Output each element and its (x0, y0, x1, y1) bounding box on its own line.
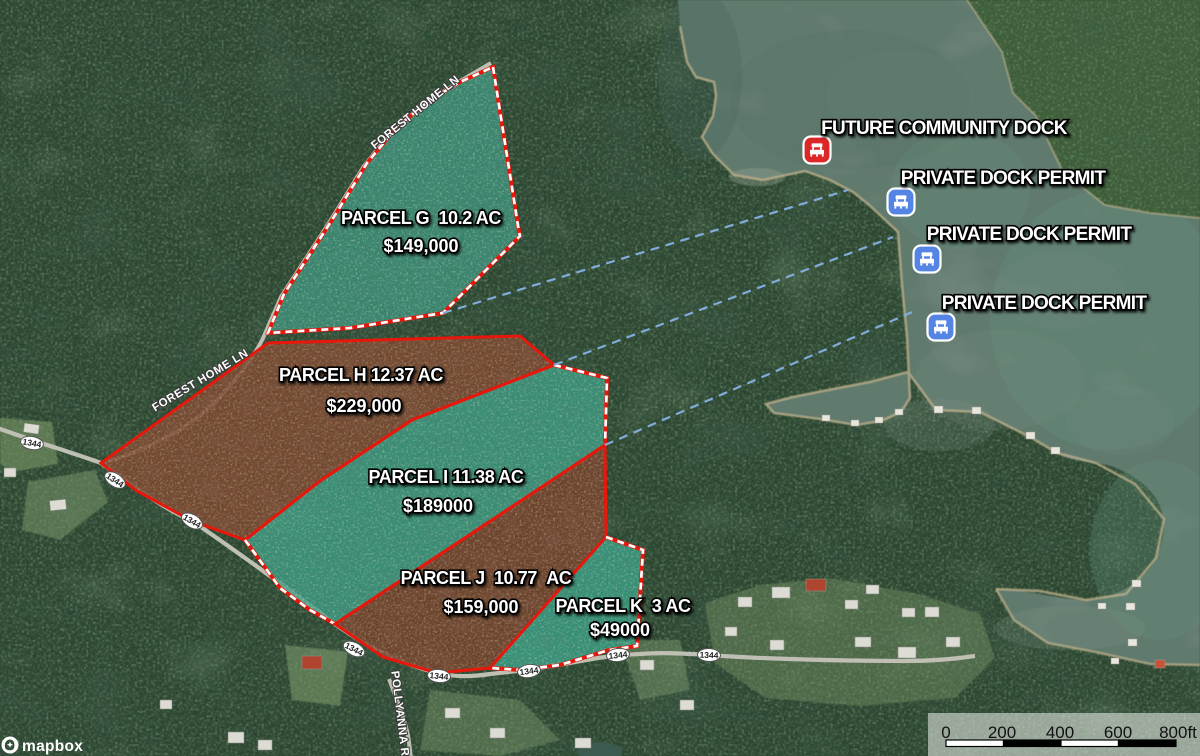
svg-text:800ft: 800ft (1159, 723, 1197, 742)
svg-text:PARCEL H 12.37 AC: PARCEL H 12.37 AC (279, 365, 443, 385)
svg-text:$159,000: $159,000 (443, 597, 518, 617)
svg-text:PARCEL K 3 AC: PARCEL K 3 AC (555, 596, 690, 616)
svg-text:PRIVATE DOCK PERMIT: PRIVATE DOCK PERMIT (901, 168, 1107, 189)
svg-text:200: 200 (988, 723, 1016, 742)
svg-text:1344: 1344 (429, 670, 449, 682)
svg-text:$229,000: $229,000 (326, 396, 401, 416)
svg-text:FUTURE COMMUNITY DOCK: FUTURE COMMUNITY DOCK (821, 118, 1068, 139)
svg-text:0: 0 (941, 723, 950, 742)
svg-text:PARCEL G 10.2 AC: PARCEL G 10.2 AC (341, 208, 501, 228)
svg-text:PRIVATE DOCK PERMIT: PRIVATE DOCK PERMIT (927, 224, 1133, 245)
svg-text:PARCEL J 10.77 AC: PARCEL J 10.77 AC (401, 568, 572, 588)
svg-text:400: 400 (1046, 723, 1074, 742)
svg-text:PARCEL I 11.38 AC: PARCEL I 11.38 AC (369, 467, 524, 487)
svg-text:PRIVATE DOCK PERMIT: PRIVATE DOCK PERMIT (942, 293, 1148, 314)
svg-text:$149,000: $149,000 (383, 236, 458, 256)
svg-text:1344: 1344 (699, 650, 719, 661)
svg-text:$49000: $49000 (590, 620, 650, 640)
svg-text:$189000: $189000 (403, 496, 473, 516)
svg-text:600: 600 (1104, 723, 1132, 742)
svg-text:1344: 1344 (608, 649, 628, 661)
svg-text:mapbox: mapbox (22, 738, 83, 755)
